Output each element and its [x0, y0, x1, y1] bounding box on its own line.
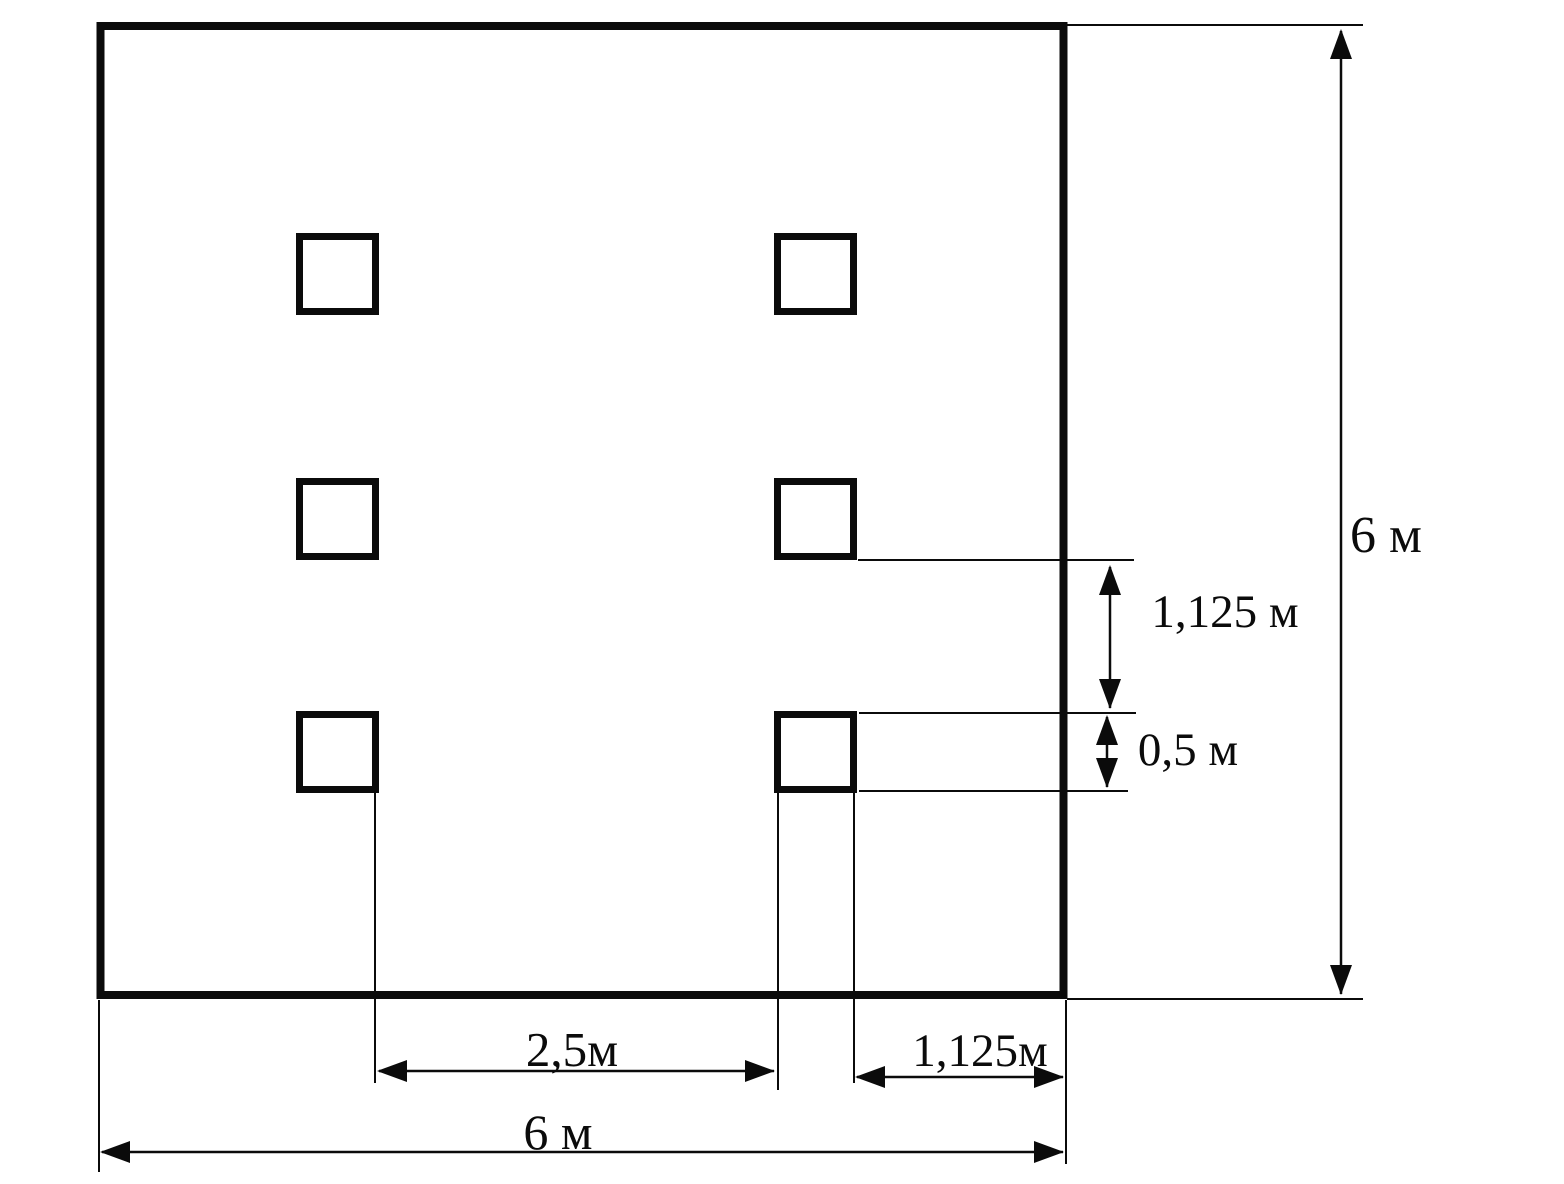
column-middle-left: [300, 482, 376, 557]
floor-plan-diagram: 6 м 1,125 м 0,5 м 2,5м 1,125м 6 м: [0, 0, 1564, 1184]
dimension-label-column-size: 0,5 м: [1138, 724, 1238, 776]
column-middle-right: [778, 482, 854, 557]
plan-outline: [101, 26, 1064, 995]
column-top-left: [300, 237, 376, 312]
column-squares: [300, 237, 854, 790]
dimension-label-total-width: 6 м: [523, 1104, 592, 1160]
column-bottom-right: [778, 715, 854, 790]
technical-drawing-page: 6 м 1,125 м 0,5 м 2,5м 1,125м 6 м: [0, 0, 1564, 1184]
dimension-label-edge-offset: 1,125м: [912, 1025, 1048, 1077]
column-top-right: [778, 237, 854, 312]
dimension-label-total-height: 6 м: [1350, 507, 1422, 564]
dimension-label-column-gap: 2,5м: [526, 1022, 618, 1077]
dimension-label-row-gap: 1,125 м: [1151, 586, 1298, 638]
column-bottom-left: [300, 715, 376, 790]
